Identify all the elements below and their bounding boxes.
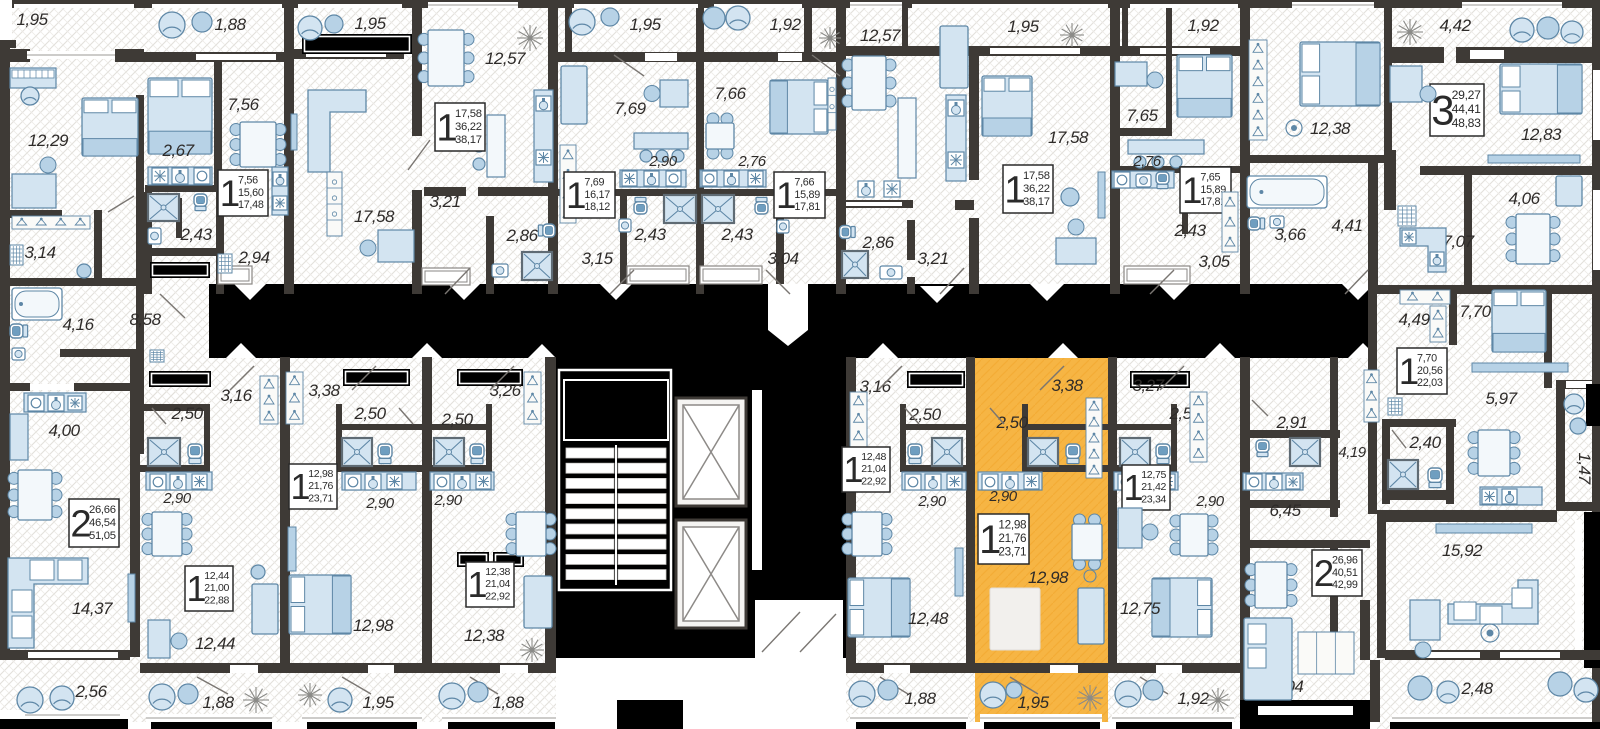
svg-text:36,22: 36,22 (1023, 183, 1050, 195)
svg-text:21,76: 21,76 (998, 532, 1027, 545)
svg-text:3,14: 3,14 (24, 243, 55, 262)
svg-text:22,92: 22,92 (485, 590, 510, 602)
svg-text:2,76: 2,76 (1132, 153, 1161, 170)
svg-text:7,07: 7,07 (1442, 232, 1474, 251)
svg-text:12,48: 12,48 (908, 609, 949, 628)
svg-text:3,04: 3,04 (767, 249, 798, 268)
svg-text:2,40: 2,40 (1408, 433, 1441, 452)
svg-text:21,04: 21,04 (485, 578, 510, 590)
svg-text:1,92: 1,92 (1177, 689, 1209, 708)
svg-text:2,50: 2,50 (995, 413, 1028, 432)
svg-text:2,43: 2,43 (633, 225, 666, 244)
svg-text:48,83: 48,83 (1452, 116, 1482, 130)
svg-text:4,00: 4,00 (48, 421, 80, 440)
svg-text:26,66: 26,66 (89, 504, 116, 516)
svg-text:1,95: 1,95 (362, 693, 394, 712)
svg-text:23,71: 23,71 (308, 492, 333, 504)
svg-text:7,66: 7,66 (794, 176, 814, 188)
svg-text:7,65: 7,65 (1126, 106, 1158, 125)
svg-text:2,86: 2,86 (861, 233, 894, 252)
svg-text:17,58: 17,58 (455, 108, 482, 120)
svg-text:15,92: 15,92 (1442, 541, 1483, 560)
svg-text:1,95: 1,95 (1017, 693, 1049, 712)
svg-text:36,22: 36,22 (455, 121, 482, 133)
svg-text:1: 1 (776, 175, 796, 216)
svg-text:14,37: 14,37 (72, 599, 113, 618)
svg-text:1,95: 1,95 (1007, 17, 1039, 36)
svg-text:12,44: 12,44 (195, 634, 235, 653)
svg-text:12,98: 12,98 (353, 616, 394, 635)
svg-text:4,19: 4,19 (1338, 444, 1366, 461)
svg-text:2,50: 2,50 (353, 404, 386, 423)
svg-text:12,98: 12,98 (998, 519, 1027, 532)
svg-text:40,51: 40,51 (1332, 567, 1358, 579)
svg-text:2,90: 2,90 (433, 492, 462, 509)
svg-text:12,44: 12,44 (204, 570, 229, 582)
svg-text:1,88: 1,88 (202, 693, 234, 712)
svg-text:7,70: 7,70 (1417, 352, 1437, 364)
svg-text:12,83: 12,83 (1521, 125, 1562, 144)
svg-text:21,00: 21,00 (204, 582, 229, 594)
svg-text:20,56: 20,56 (1417, 365, 1443, 377)
svg-text:2,43: 2,43 (179, 225, 212, 244)
svg-text:51,05: 51,05 (89, 530, 116, 542)
svg-text:2,43: 2,43 (1173, 221, 1206, 240)
svg-text:4,42: 4,42 (1439, 16, 1471, 35)
svg-text:3,21: 3,21 (917, 249, 948, 268)
svg-text:1,92: 1,92 (769, 15, 801, 34)
svg-text:22,88: 22,88 (204, 594, 229, 606)
svg-text:8,58: 8,58 (129, 310, 161, 329)
svg-text:2,56: 2,56 (74, 682, 107, 701)
svg-text:44,41: 44,41 (1452, 102, 1482, 116)
svg-text:6,45: 6,45 (1269, 501, 1301, 520)
svg-text:2,91: 2,91 (1275, 413, 1307, 432)
svg-text:2,90: 2,90 (648, 153, 677, 170)
svg-text:7,65: 7,65 (1200, 171, 1220, 183)
svg-text:12,29: 12,29 (28, 131, 69, 150)
svg-text:46,54: 46,54 (89, 517, 116, 529)
svg-text:12,57: 12,57 (485, 49, 526, 68)
svg-text:7,56: 7,56 (227, 95, 259, 114)
svg-text:22,92: 22,92 (861, 475, 886, 487)
svg-text:12,75: 12,75 (1141, 469, 1166, 481)
svg-text:7,56: 7,56 (238, 174, 258, 186)
svg-text:7,70: 7,70 (1459, 302, 1491, 321)
svg-text:1,95: 1,95 (629, 15, 661, 34)
svg-text:12,48: 12,48 (861, 451, 886, 463)
svg-text:7,69: 7,69 (584, 176, 604, 188)
svg-text:3,38: 3,38 (308, 381, 340, 400)
svg-text:2,50: 2,50 (908, 405, 941, 424)
svg-text:4,41: 4,41 (1331, 216, 1362, 235)
svg-text:2,90: 2,90 (917, 493, 946, 510)
svg-text:2,43: 2,43 (720, 225, 753, 244)
svg-text:29,27: 29,27 (1452, 88, 1482, 102)
svg-text:5,97: 5,97 (1485, 389, 1517, 408)
svg-text:42,99: 42,99 (1332, 579, 1358, 591)
svg-text:21,42: 21,42 (1141, 481, 1166, 493)
svg-text:1,47: 1,47 (1575, 452, 1594, 484)
svg-text:3,05: 3,05 (1198, 252, 1230, 271)
svg-text:21,04: 21,04 (861, 463, 886, 475)
svg-text:2,67: 2,67 (161, 141, 194, 160)
svg-text:17,81: 17,81 (794, 201, 820, 213)
svg-text:21,76: 21,76 (308, 480, 333, 492)
svg-text:1,95: 1,95 (354, 14, 386, 33)
svg-text:1,95: 1,95 (16, 10, 48, 29)
svg-text:1,92: 1,92 (1187, 16, 1219, 35)
svg-text:12,57: 12,57 (860, 26, 901, 45)
svg-text:2,90: 2,90 (162, 490, 191, 507)
svg-text:2,50: 2,50 (170, 404, 203, 423)
svg-text:12,38: 12,38 (1310, 119, 1351, 138)
svg-text:22,03: 22,03 (1417, 377, 1443, 389)
svg-text:23,34: 23,34 (1141, 493, 1166, 505)
svg-text:2,48: 2,48 (1460, 679, 1493, 698)
svg-text:2,90: 2,90 (1195, 493, 1224, 510)
svg-text:2,50: 2,50 (440, 410, 473, 429)
svg-text:12,75: 12,75 (1120, 599, 1161, 618)
svg-text:12,38: 12,38 (464, 626, 505, 645)
svg-text:1,88: 1,88 (214, 15, 246, 34)
svg-text:18,12: 18,12 (584, 201, 610, 213)
svg-text:2,76: 2,76 (737, 153, 766, 170)
svg-text:3,38: 3,38 (1051, 376, 1083, 395)
svg-text:26,96: 26,96 (1332, 554, 1358, 566)
svg-text:3,15: 3,15 (581, 249, 613, 268)
svg-text:38,17: 38,17 (455, 134, 482, 146)
svg-text:4,06: 4,06 (1508, 189, 1540, 208)
svg-text:2,94: 2,94 (237, 248, 269, 267)
svg-text:15,89: 15,89 (794, 189, 820, 201)
svg-text:2,90: 2,90 (988, 488, 1017, 505)
svg-text:16,17: 16,17 (584, 189, 610, 201)
svg-text:7,69: 7,69 (614, 99, 646, 118)
svg-text:1,88: 1,88 (492, 693, 524, 712)
svg-text:4,16: 4,16 (62, 315, 94, 334)
svg-text:3,21: 3,21 (429, 192, 460, 211)
svg-text:4,49: 4,49 (1398, 310, 1430, 329)
svg-text:3,27: 3,27 (1132, 376, 1164, 395)
svg-text:12,98: 12,98 (308, 468, 333, 480)
svg-text:1,88: 1,88 (904, 689, 936, 708)
svg-text:17,58: 17,58 (354, 207, 395, 226)
svg-text:23,71: 23,71 (998, 546, 1026, 559)
svg-text:2,90: 2,90 (365, 495, 394, 512)
svg-text:17,58: 17,58 (1048, 128, 1089, 147)
svg-text:15,60: 15,60 (238, 187, 264, 199)
svg-text:1: 1 (566, 175, 586, 216)
svg-text:2,86: 2,86 (505, 226, 538, 245)
svg-text:12,38: 12,38 (485, 566, 510, 578)
svg-text:1: 1 (1182, 170, 1202, 211)
svg-text:17,48: 17,48 (238, 199, 264, 211)
svg-text:12,98: 12,98 (1028, 568, 1069, 587)
svg-text:3,16: 3,16 (220, 386, 252, 405)
svg-text:38,17: 38,17 (1023, 196, 1050, 208)
svg-text:7,66: 7,66 (714, 84, 746, 103)
svg-text:3,26: 3,26 (489, 381, 521, 400)
svg-text:17,58: 17,58 (1023, 170, 1050, 182)
